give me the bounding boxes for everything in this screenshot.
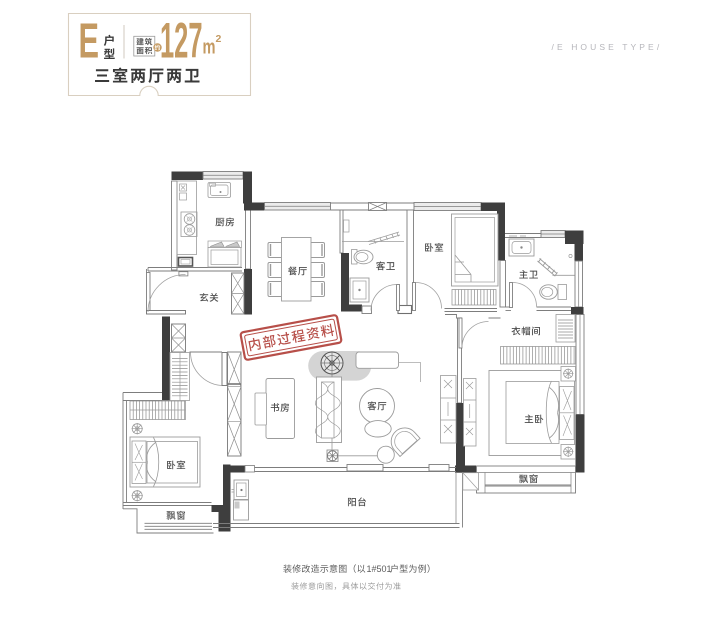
- svg-text:127: 127: [160, 13, 203, 69]
- svg-text:m: m: [203, 37, 216, 59]
- svg-text:/E HOUSE TYPE/: /E HOUSE TYPE/: [552, 42, 663, 52]
- svg-text:2: 2: [216, 33, 222, 45]
- svg-text:1#501: 1#501: [367, 564, 392, 574]
- svg-text:E: E: [79, 15, 100, 69]
